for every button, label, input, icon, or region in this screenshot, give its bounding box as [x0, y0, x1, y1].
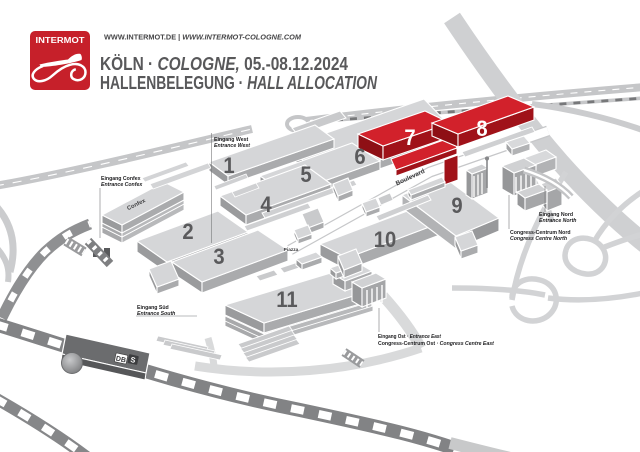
svg-text:6: 6	[354, 145, 365, 169]
svg-text:10: 10	[374, 228, 397, 252]
svg-text:WWW.INTERMOT.DE | WWW.INTERMOT: WWW.INTERMOT.DE | WWW.INTERMOT-COLOGNE.C…	[104, 33, 302, 42]
svg-text:Congress-Centrum Ost · Congres: Congress-Centrum Ost · Congress Centre E…	[378, 341, 494, 347]
svg-text:INTERMOT: INTERMOT	[36, 35, 86, 45]
svg-text:7: 7	[404, 126, 415, 150]
svg-text:HALLENBELEGUNG · HALL ALLOCATI: HALLENBELEGUNG · HALL ALLOCATION	[100, 72, 377, 93]
svg-text:9: 9	[451, 194, 462, 218]
svg-text:Congress Centre North: Congress Centre North	[510, 236, 567, 242]
svg-text:2: 2	[182, 220, 193, 244]
svg-text:8: 8	[476, 117, 487, 141]
svg-text:1: 1	[223, 154, 234, 178]
svg-text:Entrance North: Entrance North	[539, 218, 576, 224]
svg-text:5: 5	[300, 163, 311, 187]
svg-text:Entrance West: Entrance West	[214, 143, 250, 149]
svg-text:KÖLN · COLOGNE, 05.-08.12.2024: KÖLN · COLOGNE, 05.-08.12.2024	[100, 53, 349, 74]
svg-text:Piazza: Piazza	[284, 247, 299, 253]
svg-text:11: 11	[276, 288, 298, 312]
svg-text:Entrance South: Entrance South	[137, 311, 175, 317]
svg-text:Eingang Ost · Entrance East: Eingang Ost · Entrance East	[378, 334, 441, 340]
svg-text:4: 4	[260, 193, 271, 217]
svg-text:Entrance Confex: Entrance Confex	[101, 182, 143, 188]
svg-text:3: 3	[213, 245, 224, 269]
